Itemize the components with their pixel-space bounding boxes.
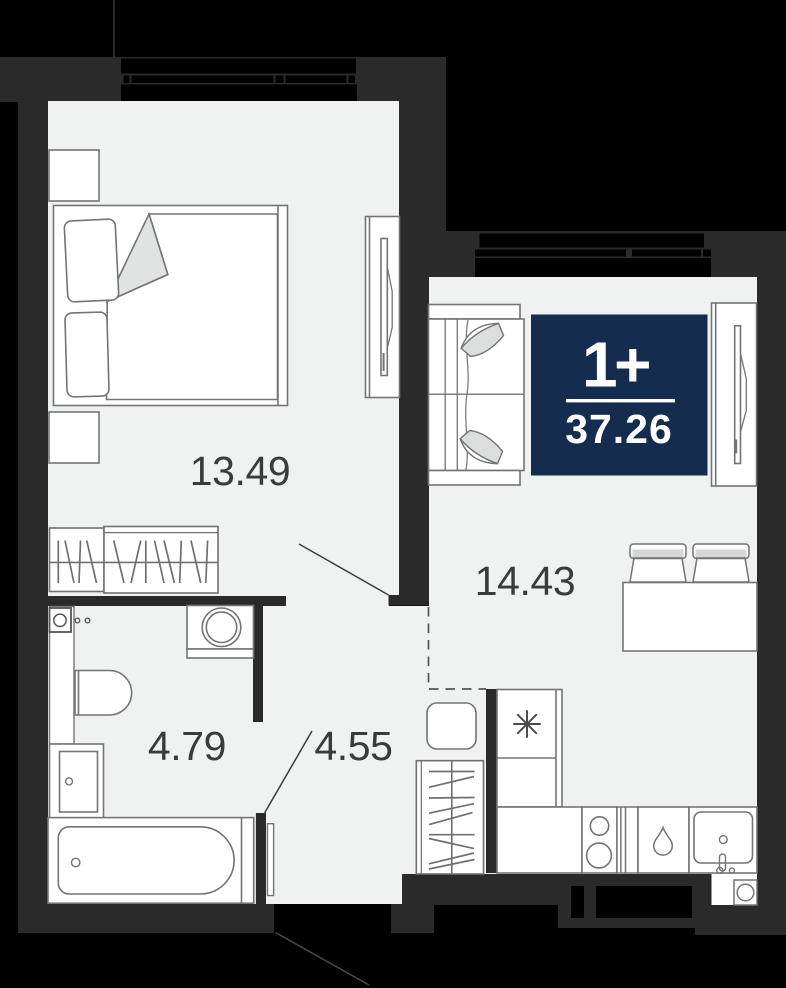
svg-text:14.43: 14.43: [475, 558, 576, 604]
svg-text:37.26: 37.26: [565, 406, 673, 452]
svg-text:13.49: 13.49: [190, 448, 291, 494]
svg-text:4.55: 4.55: [314, 723, 392, 769]
svg-text:4.79: 4.79: [148, 723, 226, 769]
svg-text:1+: 1+: [582, 329, 649, 401]
